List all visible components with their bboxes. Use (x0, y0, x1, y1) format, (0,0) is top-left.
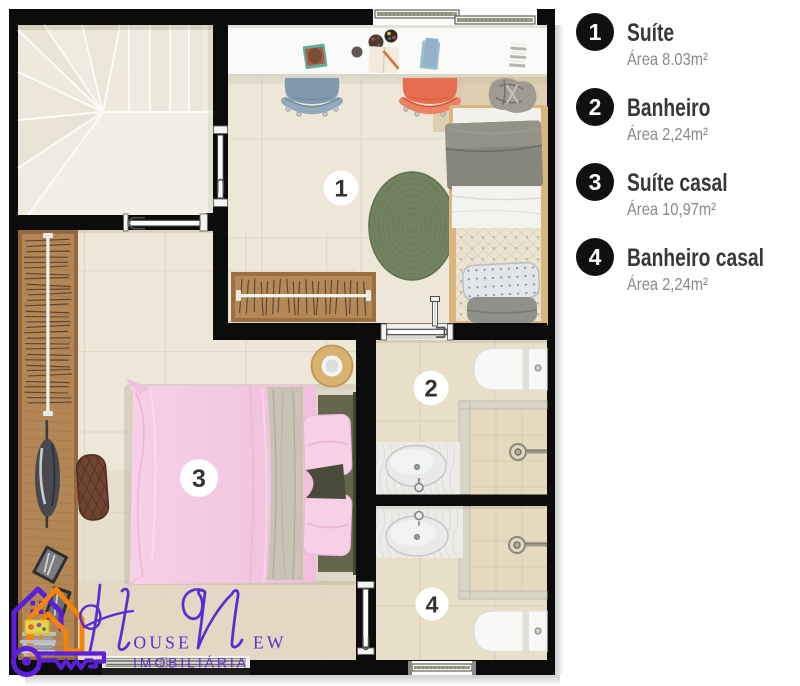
svg-text:IMOBILIÁRIA: IMOBILIÁRIA (133, 655, 249, 671)
svg-text:4: 4 (426, 591, 439, 617)
svg-text:3: 3 (192, 465, 206, 493)
svg-text:EW: EW (253, 633, 287, 653)
svg-text:OUSE: OUSE (134, 633, 193, 653)
svg-text:2: 2 (424, 376, 437, 403)
svg-text:1: 1 (334, 176, 347, 203)
